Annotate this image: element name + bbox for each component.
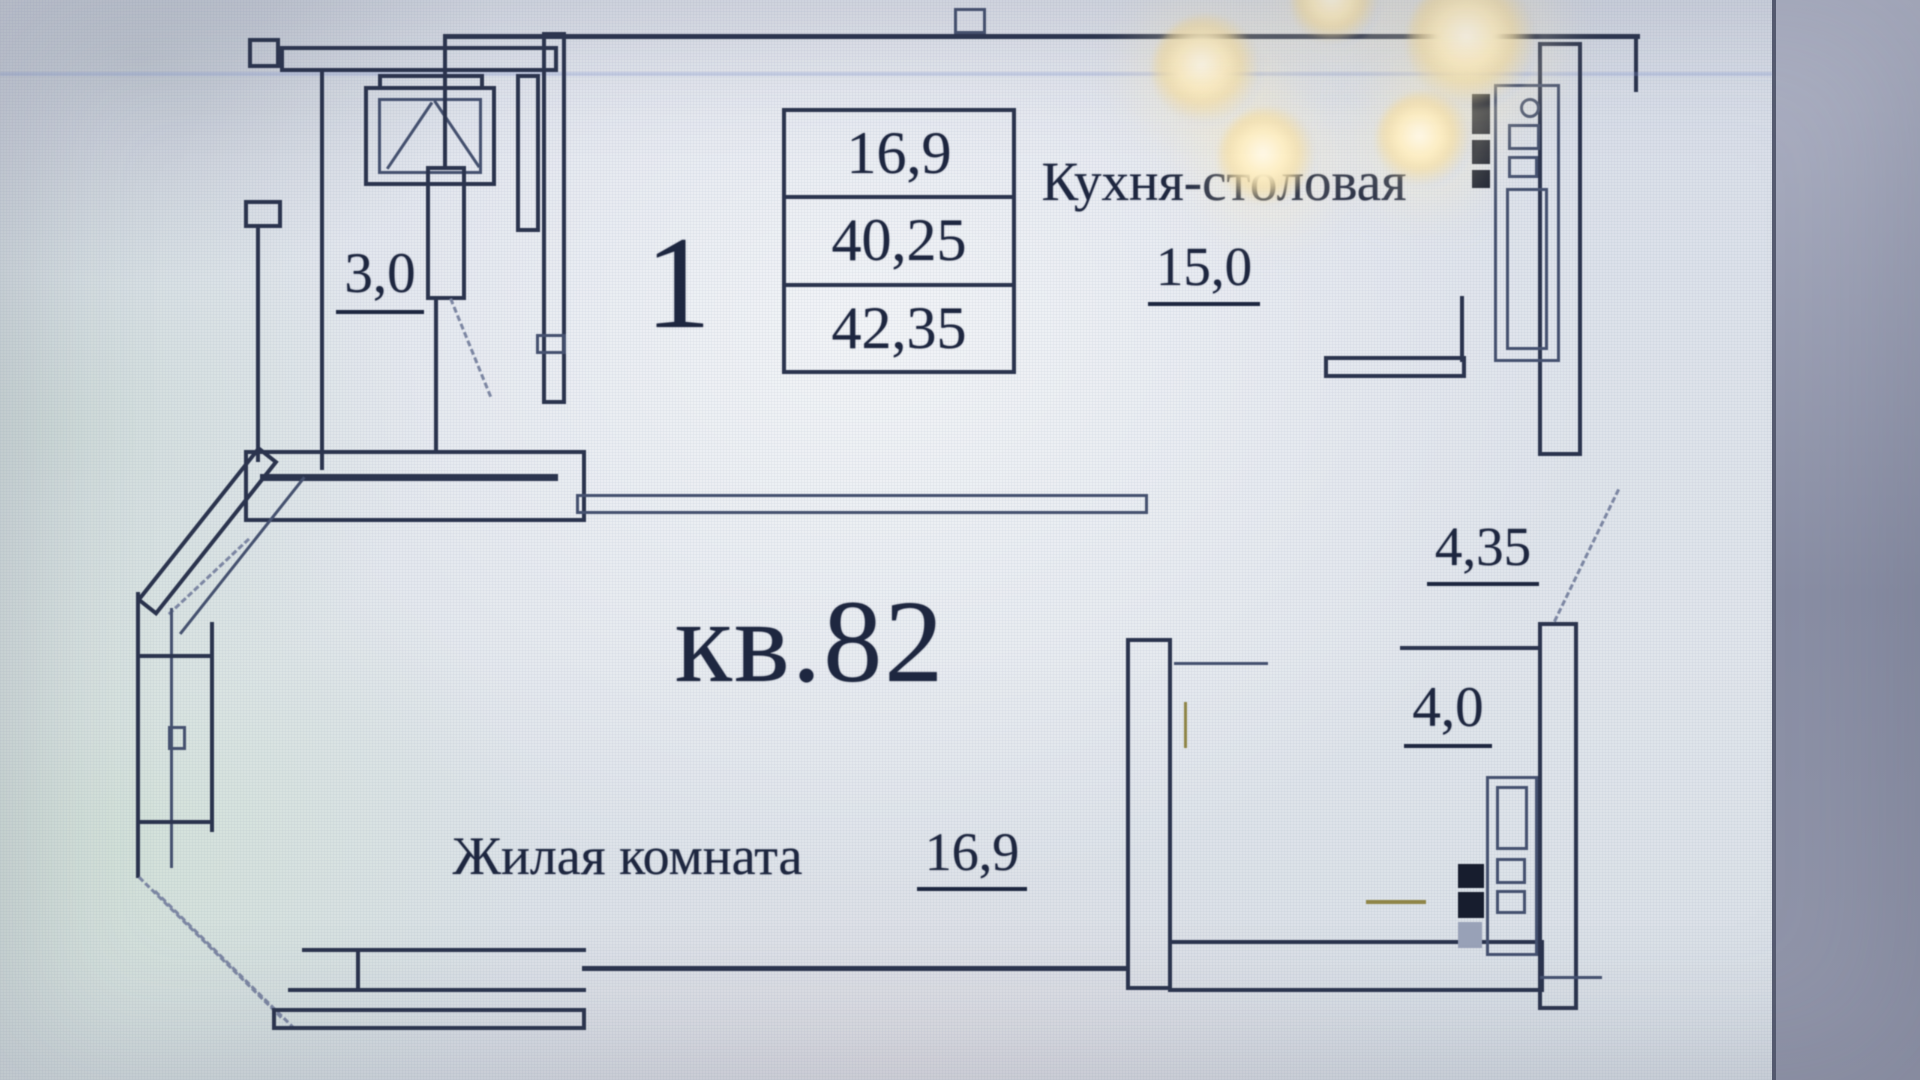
balcony-left-wall <box>320 70 324 470</box>
area-stamp-row-floor: 40,25 <box>786 199 1012 286</box>
pilaster-bottom-line <box>434 300 438 452</box>
bath-vent-block-1 <box>1458 864 1484 888</box>
balcony-left-post <box>244 200 282 228</box>
vent-shaft-block-2 <box>1472 140 1490 164</box>
hallway-area: 4,35 <box>1418 518 1548 582</box>
bottom-window-line-2 <box>288 988 586 992</box>
balcony-door-swing <box>449 298 492 397</box>
balcony-inner-wall-stub <box>516 74 540 232</box>
light-reflection-5 <box>1376 92 1472 188</box>
balcony-area: 3,0 <box>328 244 432 310</box>
bathroom-top-wall <box>1400 646 1540 650</box>
apartment-number: кв.82 <box>655 568 965 716</box>
bathroom-fixture-sq-2 <box>1496 890 1526 914</box>
bottom-right-stub-line <box>1540 976 1602 979</box>
floor-plan: 1 16,9 40,25 42,35 Кухня-столовая 15,0 3… <box>0 0 1920 1080</box>
hatch-window-inner <box>378 98 482 174</box>
photo-of-floorplan-screen: 1 16,9 40,25 42,35 Кухня-столовая 15,0 3… <box>0 0 1920 1080</box>
hall-right-wall <box>1538 622 1578 1010</box>
bay-cap-top <box>136 654 214 658</box>
bath-vent-block-2 <box>1458 892 1484 918</box>
living-bottom-wall <box>582 966 1130 971</box>
kitchen-counter-long <box>1506 188 1548 350</box>
kitchen-sink-bowl-1 <box>1508 124 1540 150</box>
living-room-label: Жилая комната <box>430 822 825 890</box>
bottom-window-tick <box>356 950 360 990</box>
living-bath-pillar <box>1126 638 1172 990</box>
bay-cap-bottom <box>136 820 214 824</box>
pilaster-top-line <box>443 34 447 166</box>
bathroom-area: 4,0 <box>1392 678 1504 744</box>
photo-mark-vertical <box>1184 702 1187 748</box>
bathroom-door-inner <box>1496 786 1528 850</box>
vent-shaft-block-3 <box>1472 170 1490 188</box>
kitchen-area: 15,0 <box>1146 238 1262 302</box>
bathroom-fixture-sq-1 <box>1496 858 1526 884</box>
bay-upper-diagonal-wall <box>136 446 279 617</box>
kitchen-living-partition <box>576 494 1148 514</box>
balcony-railing-bar <box>280 46 558 72</box>
kitchen-sink-bowl-2 <box>1508 156 1538 178</box>
entry-door-swing <box>1553 489 1620 623</box>
light-reflection-1 <box>1152 15 1262 125</box>
area-stamp-row-total: 42,35 <box>786 287 1012 370</box>
area-stamp-row-living: 16,9 <box>786 112 1012 199</box>
photo-mark-horizontal <box>1366 900 1426 904</box>
top-vent-square <box>954 8 986 34</box>
balcony-left-post-line <box>256 228 260 462</box>
bathroom-fixture-line <box>1174 662 1268 665</box>
kitchen-unit-circle <box>1520 98 1540 118</box>
balcony-railing-cap <box>248 38 280 68</box>
living-room-area: 16,9 <box>914 822 1030 890</box>
area-stamp-table: 16,9 40,25 42,35 <box>782 108 1016 374</box>
bay-connector <box>168 726 186 750</box>
balcony-door-tick <box>536 334 566 354</box>
bottom-window-band <box>272 1008 586 1030</box>
light-reflection-2 <box>1218 108 1318 208</box>
rooms-count: 1 <box>636 200 720 365</box>
bath-gray-block <box>1458 922 1482 948</box>
counter-left-line <box>1460 296 1464 362</box>
top-wall-right-hook <box>1634 34 1638 92</box>
kitchen-hall-wall <box>1324 356 1466 378</box>
bay-left-window-outer <box>136 592 140 878</box>
bottom-window-line-1 <box>302 948 586 952</box>
balcony-pilaster <box>426 166 466 300</box>
